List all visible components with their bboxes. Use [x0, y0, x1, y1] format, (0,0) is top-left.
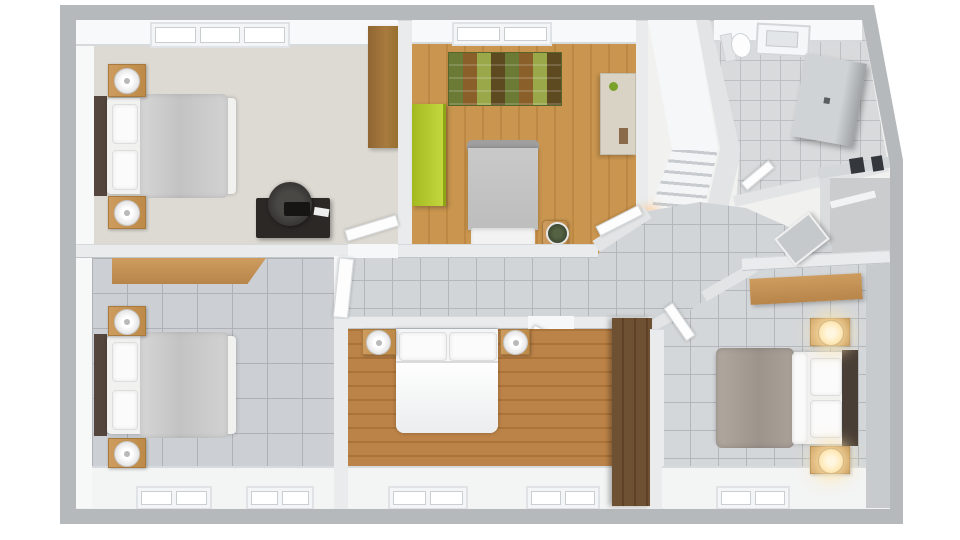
pillow: [112, 104, 138, 144]
dark-wardrobe: [612, 318, 652, 506]
skylight-window: [755, 23, 811, 58]
partition-wall: [334, 318, 348, 510]
window-icon: [136, 486, 212, 510]
double-bed: [396, 329, 498, 433]
pillow: [112, 390, 138, 430]
double-bed: [94, 334, 238, 436]
window-icon: [388, 486, 468, 510]
table-lamp-icon: [114, 309, 140, 335]
plant-icon: [546, 222, 569, 245]
beige-cabinet: [600, 73, 636, 155]
patchwork-rug: [448, 52, 562, 106]
blanket: [140, 332, 228, 438]
headboard: [94, 96, 107, 196]
table-lamp-icon: [114, 200, 140, 226]
pillow: [810, 400, 842, 438]
hall-top-wall-left: [76, 244, 348, 258]
glowing-lamp-icon: [818, 448, 844, 474]
blanket: [140, 94, 228, 198]
cabinet-slot: [619, 128, 628, 144]
double-bed: [94, 96, 238, 196]
vent-icon: [849, 157, 865, 174]
lime-wardrobe: [412, 104, 446, 206]
single-bed: [467, 140, 539, 256]
building-interior: [0, 0, 960, 540]
toilet-icon: [719, 27, 753, 62]
pillow: [810, 358, 842, 396]
double-bed: [716, 350, 858, 446]
pillow: [112, 342, 138, 382]
glowing-lamp-icon: [818, 320, 844, 346]
floor-plan-render: [0, 0, 960, 540]
partition-wall: [398, 20, 412, 246]
wardrobe: [368, 26, 398, 148]
duvet: [396, 361, 498, 433]
headboard: [842, 350, 858, 446]
typewriter: [284, 202, 310, 216]
hall-top-wall-right: [398, 244, 598, 258]
sheet-fold: [792, 351, 808, 444]
pillow: [112, 150, 138, 190]
window-icon: [452, 22, 552, 46]
taupe-blanket: [716, 348, 794, 448]
bedroom-top-left-wallface: [76, 20, 94, 256]
table-lamp-icon: [366, 330, 391, 355]
hall-bottom-wall-left: [346, 316, 528, 329]
vent-icon: [871, 155, 884, 172]
window-icon: [526, 486, 600, 510]
right-wallface: [866, 262, 890, 508]
leaf-decal: [609, 82, 618, 91]
table-lamp-icon: [114, 68, 140, 94]
table-lamp-icon: [114, 441, 140, 467]
window-icon: [150, 22, 290, 48]
pillow: [449, 332, 497, 361]
bottom-left-wallface: [76, 258, 92, 508]
pillow: [399, 332, 447, 361]
table-lamp-icon: [503, 330, 528, 355]
wood-shelf-desk: [112, 258, 266, 284]
doorway-top-left-bedroom: [348, 244, 398, 258]
window-icon: [716, 486, 790, 510]
window-icon: [246, 486, 314, 510]
